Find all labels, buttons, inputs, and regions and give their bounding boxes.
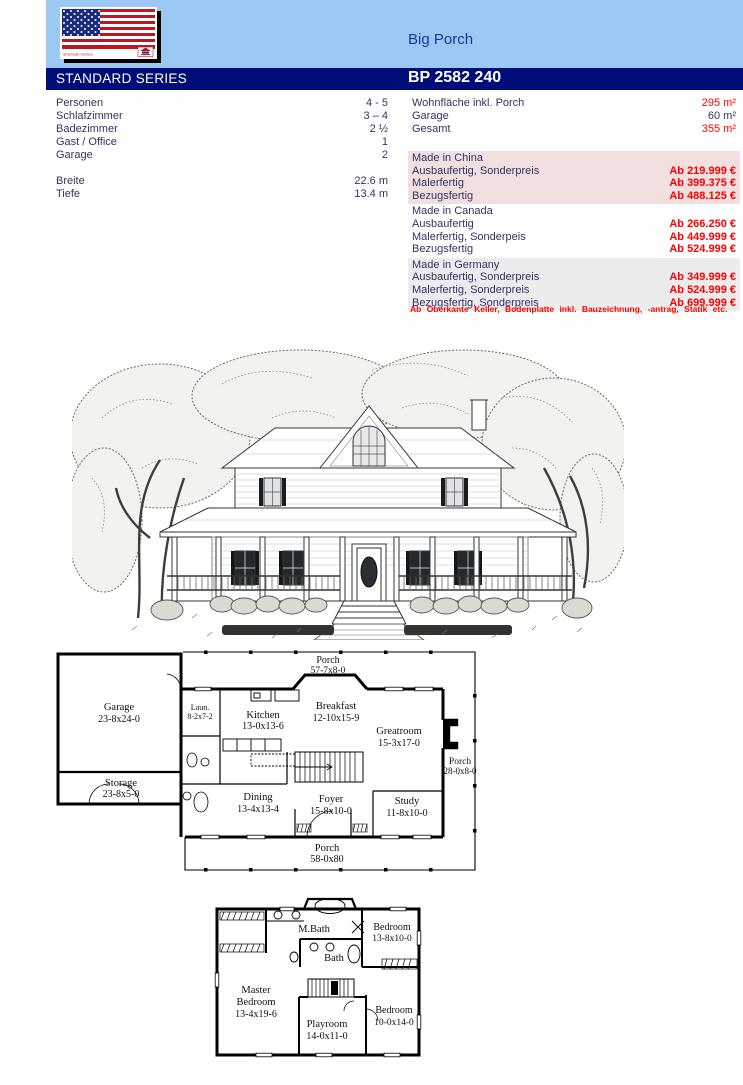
price-row: Malerfertig, SonderpreisAb 524.999 € xyxy=(412,284,736,297)
room-dim: 13-4x13-4 xyxy=(237,804,279,815)
price-label: Ausbaufertig, Sonderpreis xyxy=(412,271,539,284)
room-dim: 23-8x24-0 xyxy=(98,714,140,725)
spec-row: Gesamt355 m² xyxy=(412,123,736,136)
price-row: Ausbaufertig, SonderpreisAb 349.999 € xyxy=(412,271,736,284)
tub xyxy=(315,899,345,914)
room-label: Playroom xyxy=(307,1019,348,1030)
price-label: Ausbaufertig xyxy=(412,218,474,231)
room-dim: 28-0x8-0 xyxy=(444,766,477,776)
room-dim: 57-7x8-0 xyxy=(311,666,346,676)
room-dim: 12-10x15-9 xyxy=(313,713,360,724)
price-row: MalerfertigAb 399.375 € xyxy=(412,177,736,190)
front-steps xyxy=(332,601,406,624)
porch-fascia xyxy=(160,532,576,537)
spec-value: 1 xyxy=(382,136,388,149)
room-label: Garage xyxy=(104,702,135,713)
price-value: Ab 488.125 € xyxy=(669,190,736,203)
price-value: Ab 349.999 € xyxy=(669,271,736,284)
room-label: Laun. xyxy=(191,703,209,712)
spec-row: Schlafzimmer3 – 4 xyxy=(56,110,388,123)
spec-label: Personen xyxy=(56,97,103,110)
american-homes-flag-logo: american homes xyxy=(60,7,157,59)
room-dim: 8-2x7-2 xyxy=(187,712,212,721)
flag-graphic: american homes xyxy=(62,9,155,57)
spec-row: Garage60 m² xyxy=(412,110,736,123)
spec-value: 295 m² xyxy=(702,97,736,110)
region-header: Made in China xyxy=(412,152,736,165)
room-label: Kitchen xyxy=(246,710,280,721)
floorplan-second-floor: M.Bath Bath Bedroom 13-8x10-0 Master Bed… xyxy=(204,897,426,1083)
price-value: Ab 399.375 € xyxy=(669,177,736,190)
spec-value: 2 xyxy=(382,149,388,162)
room-label: Greatroom xyxy=(376,726,421,737)
spec-row: Garage2 xyxy=(56,149,388,162)
series-bar: STANDARD SERIES BP 2582 240 xyxy=(46,68,743,90)
door-swing xyxy=(344,1001,378,1021)
room-label: Dining xyxy=(243,792,273,803)
price-label: Bezugsfertig xyxy=(412,190,473,203)
room-label: Study xyxy=(395,796,420,807)
price-row: Ausbaufertig, SonderpreisAb 219.999 € xyxy=(412,165,736,178)
spec-value: 60 m² xyxy=(708,110,736,123)
price-label: Malerfertig xyxy=(412,177,464,190)
price-label: Malerfertig, Sonderpreis xyxy=(412,284,529,297)
spec-value: 4 - 5 xyxy=(366,97,388,110)
room-dim: 15-8x10-0 xyxy=(310,806,352,817)
spec-label: Gesamt xyxy=(412,123,451,136)
spec-label: Tiefe xyxy=(56,188,80,201)
white-house-badge-icon xyxy=(138,47,153,57)
breakfast-bay xyxy=(293,675,367,689)
specs-right-column: Wohnfläche inkl. Porch295 m² Garage60 m²… xyxy=(412,97,736,136)
price-label: Bezugsfertig xyxy=(412,243,473,256)
spec-value: 22.6 m xyxy=(354,175,388,188)
spec-row: Breite22.6 m xyxy=(56,175,388,188)
room-dim: 14-0x11-0 xyxy=(306,1031,347,1042)
spec-label: Wohnfläche inkl. Porch xyxy=(412,97,524,110)
series-label: STANDARD SERIES xyxy=(56,71,187,86)
room-label: Bedroom xyxy=(375,1005,412,1016)
spec-row: Tiefe13.4 m xyxy=(56,188,388,201)
header-band: american homes Big Porch xyxy=(46,0,743,68)
room-dim: 23-8x5-0 xyxy=(103,789,140,800)
spec-value: 355 m² xyxy=(702,123,736,136)
price-block-canada: Made in Canada AusbaufertigAb 266.250 € … xyxy=(408,204,740,257)
specs-left-column: Personen4 - 5 Schlafzimmer3 – 4 Badezimm… xyxy=(56,97,388,201)
room-label: Storage xyxy=(105,778,137,789)
room-label: Foyer xyxy=(319,794,344,805)
spec-row: Badezimmer2 ½ xyxy=(56,123,388,136)
price-row: Malerfertig, SonderpeisAb 449.999 € xyxy=(412,231,736,244)
room-dim: 10-0x14-0 xyxy=(374,1018,414,1028)
stairs xyxy=(308,979,354,997)
price-row: BezugsfertigAb 524.999 € xyxy=(412,243,736,256)
room-dim: 58-0x80 xyxy=(310,854,343,865)
price-row: AusbaufertigAb 266.250 € xyxy=(412,218,736,231)
flag-caption: american homes xyxy=(63,52,93,57)
room-dim: 13-8x10-0 xyxy=(372,934,412,944)
spec-label: Badezimmer xyxy=(56,123,118,136)
bath-fixtures xyxy=(183,753,209,812)
room-label: Porch xyxy=(315,843,340,854)
brochure-page: american homes Big Porch STANDARD SERIES… xyxy=(0,0,743,1085)
room-label: Breakfast xyxy=(316,701,356,712)
room-label: Bedroom xyxy=(236,997,275,1008)
spec-value: 13.4 m xyxy=(354,188,388,201)
price-value: Ab 266.250 € xyxy=(669,218,736,231)
room-label: Bath xyxy=(324,953,345,964)
price-value: Ab 524.999 € xyxy=(669,284,736,297)
spec-row: Personen4 - 5 xyxy=(56,97,388,110)
spec-value: 2 ½ xyxy=(370,123,388,136)
room-dim: 13-4x19-6 xyxy=(235,1009,277,1020)
room-label: Master xyxy=(241,985,271,996)
price-block-china: Made in China Ausbaufertig, SonderpreisA… xyxy=(408,151,740,204)
room-dim: 13-0x13-6 xyxy=(242,721,284,732)
page-title: Big Porch xyxy=(408,31,473,48)
price-value: Ab 449.999 € xyxy=(669,231,736,244)
room-label: M.Bath xyxy=(298,924,331,935)
chimney xyxy=(472,400,486,430)
spec-row: Gast / Office1 xyxy=(56,136,388,149)
spec-value: 3 – 4 xyxy=(364,110,388,123)
room-dim: 15-3x17-0 xyxy=(378,738,420,749)
room-label: Porch xyxy=(316,655,339,666)
region-header: Made in Germany xyxy=(412,259,736,272)
front-door xyxy=(352,544,386,601)
room-dim: 11-8x10-0 xyxy=(386,808,427,819)
price-footnote: Ab Oberkante Keller, Bodenplatte inkl. B… xyxy=(410,304,742,314)
price-value: Ab 219.999 € xyxy=(669,165,736,178)
region-header: Made in Canada xyxy=(412,205,736,218)
spec-label: Garage xyxy=(412,110,449,123)
spec-label: Schlafzimmer xyxy=(56,110,123,123)
bath-fixtures xyxy=(266,911,364,963)
model-code: BP 2582 240 xyxy=(408,69,501,87)
room-label: Bedroom xyxy=(373,922,410,933)
island xyxy=(251,754,295,766)
fireplace xyxy=(443,720,457,748)
price-label: Malerfertig, Sonderpeis xyxy=(412,231,526,244)
house-rendering xyxy=(72,348,624,640)
price-row: BezugsfertigAb 488.125 € xyxy=(412,190,736,203)
stairs xyxy=(295,752,363,782)
floorplan-first-floor: Porch 57-7x8-0 Garage 23-8x24-0 Laun. 8-… xyxy=(55,644,478,894)
spec-label: Gast / Office xyxy=(56,136,117,149)
price-area: Made in China Ausbaufertig, SonderpreisA… xyxy=(408,151,740,311)
spec-label: Garage xyxy=(56,149,93,162)
price-label: Ausbaufertig, Sonderpreis xyxy=(412,165,539,178)
spec-row: Wohnfläche inkl. Porch295 m² xyxy=(412,97,736,110)
price-value: Ab 524.999 € xyxy=(669,243,736,256)
spec-label: Breite xyxy=(56,175,85,188)
